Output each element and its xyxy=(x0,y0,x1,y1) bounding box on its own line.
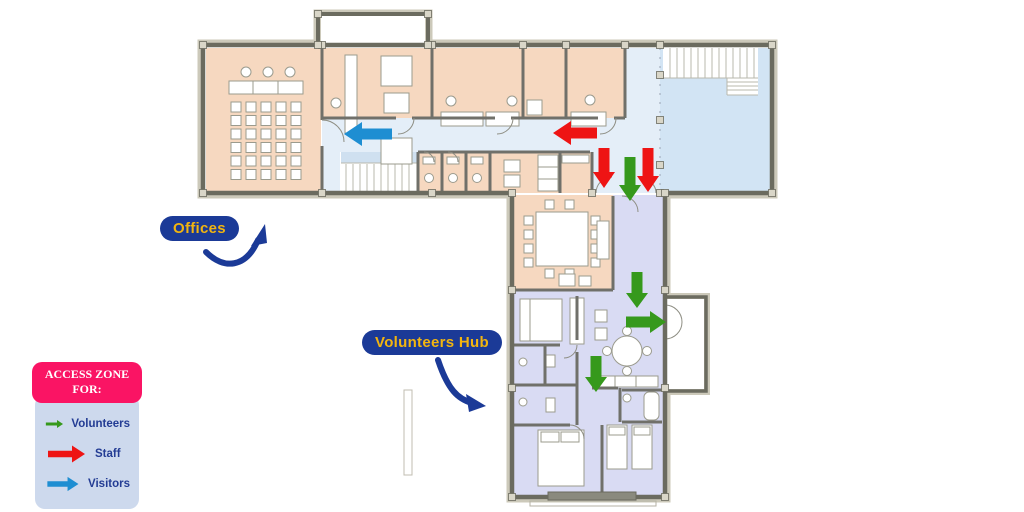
legend-title: ACCESS ZONE FOR: xyxy=(32,362,142,403)
legend-title-line2: FOR: xyxy=(72,382,101,396)
staff-arrow-icon xyxy=(44,445,88,463)
legend-item-label: Volunteers xyxy=(71,418,130,430)
volunteers-arrow-icon xyxy=(44,415,64,433)
vestibule xyxy=(321,16,425,45)
legend-items: VolunteersStaffVisitors xyxy=(35,395,139,509)
legend-item-staff: Staff xyxy=(44,445,130,463)
offices-badge: Offices xyxy=(160,216,239,241)
zone-office-row xyxy=(322,48,625,118)
floor-plan xyxy=(0,0,1024,512)
legend-item-label: Visitors xyxy=(88,478,130,490)
legend-item-volunteers: Volunteers xyxy=(44,415,130,433)
infographic-canvas: Offices Volunteers Hub ACCESS ZONE FOR: … xyxy=(0,0,1024,512)
access-zone-legend: ACCESS ZONE FOR: VolunteersStaffVisitors xyxy=(32,362,142,509)
visitors-arrow-icon xyxy=(44,475,81,493)
legend-item-visitors: Visitors xyxy=(44,475,130,493)
legend-item-label: Staff xyxy=(95,448,121,460)
legend-title-line1: ACCESS ZONE xyxy=(45,367,129,381)
zone-lobby-strip xyxy=(625,48,660,118)
wall-fragment xyxy=(404,390,412,475)
volunteers-hub-badge: Volunteers Hub xyxy=(362,330,502,355)
entrance-porch xyxy=(665,299,704,389)
